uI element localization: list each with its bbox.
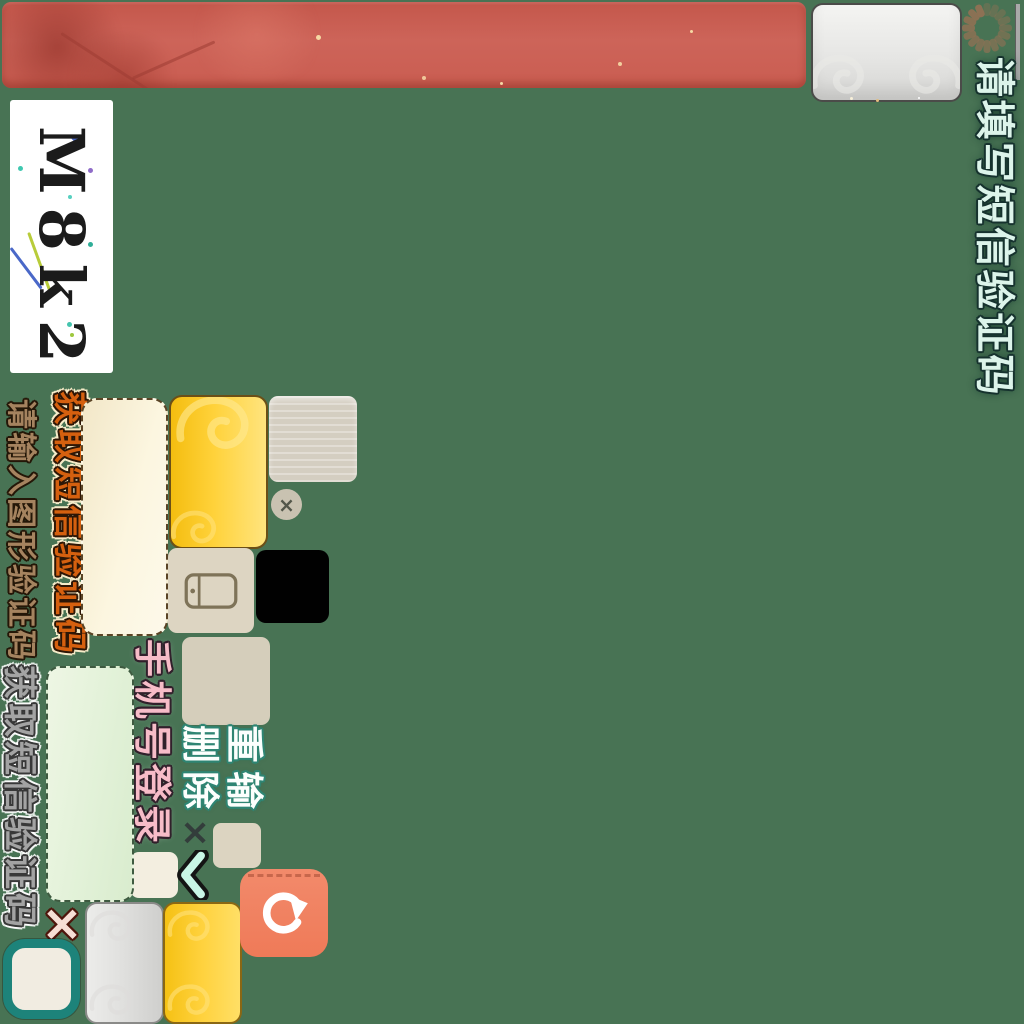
captcha-noise (18, 166, 23, 171)
reenter-label[interactable]: 重输 (225, 725, 263, 817)
top-right-button[interactable] (811, 3, 962, 102)
cloud-motif-icon (169, 506, 221, 549)
beige-square[interactable] (182, 637, 270, 725)
delete-label[interactable]: 删除 (181, 725, 219, 817)
phone-icon (183, 571, 239, 611)
cloud-motif-icon (904, 50, 962, 102)
sparkle-dot (876, 99, 879, 102)
phone-icon-button[interactable] (168, 548, 254, 633)
silver-card-button[interactable] (85, 902, 164, 1024)
banner-sparkle (422, 76, 426, 80)
cream-square-small[interactable] (130, 852, 178, 898)
phone-login-label[interactable]: 手机号登录 (133, 639, 171, 847)
banner-sparkle (500, 82, 503, 85)
close-icon: × (278, 493, 295, 517)
banner-sparkle (618, 62, 622, 66)
captcha-code: M8k2 (30, 126, 92, 376)
cloud-motif-icon (173, 395, 257, 461)
cloud-motif-icon (165, 906, 215, 948)
get-sms-code-label-2[interactable]: 获取短信验证码 (2, 665, 36, 931)
banner-sparkle (690, 30, 693, 33)
cloud-motif-icon (87, 906, 137, 948)
sparkle-dot (918, 97, 920, 99)
gold-card-button[interactable] (163, 902, 242, 1024)
gold-button[interactable] (169, 395, 268, 549)
sms-code-title: 请填写短信验证码 (974, 57, 1014, 397)
cloud-motif-icon (87, 980, 137, 1022)
screen: 请填写短信验证码 M8k2 获取短信验证码 请输入图形验证码 获取短信验证码 × (0, 0, 1024, 1024)
teal-frame-button[interactable] (3, 939, 80, 1019)
refresh-button[interactable] (240, 869, 328, 957)
cloud-motif-icon (811, 50, 869, 102)
graphic-code-placeholder: 请输入图形验证码 (5, 399, 35, 663)
cream-panel-button[interactable] (81, 398, 168, 636)
black-square[interactable] (256, 550, 329, 623)
banner-decoration (182, 2, 332, 82)
cloud-motif-icon (165, 980, 215, 1022)
back-chevron[interactable] (176, 850, 210, 900)
beige-square-small[interactable] (213, 823, 261, 868)
refresh-icon (258, 887, 310, 939)
close-icon-dark[interactable]: × (180, 812, 210, 853)
top-banner (2, 2, 806, 88)
spinner-icon (960, 1, 1014, 55)
gray-square-button[interactable] (269, 396, 357, 482)
banner-sparkle (316, 35, 321, 40)
sparkle-dot (850, 97, 853, 100)
close-circle-button[interactable]: × (271, 489, 302, 520)
green-panel-button[interactable] (46, 666, 134, 902)
